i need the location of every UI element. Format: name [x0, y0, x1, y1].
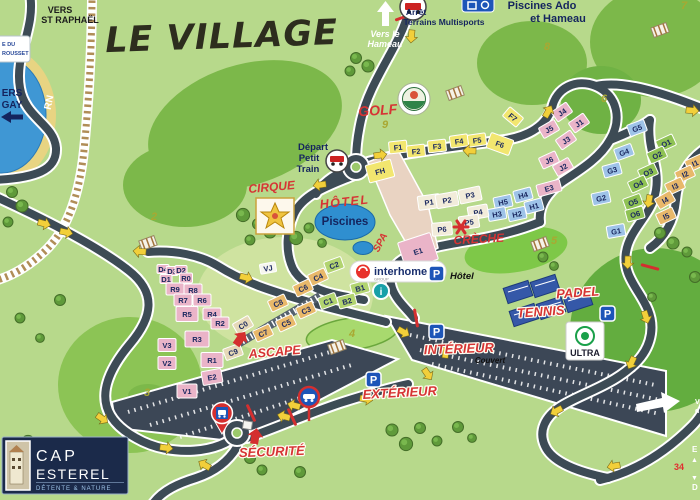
rousset-line2: ROUSSET [2, 51, 29, 57]
building-R0: R0 [180, 273, 193, 283]
golf-hole-number: 9 [382, 119, 389, 131]
edge-text-v: V [695, 399, 700, 406]
vers-agay-sign: ERS GAY [1, 88, 23, 123]
vers-st-raphael-line1: VERS [48, 5, 73, 15]
bush [362, 60, 374, 72]
info-letter: i [380, 287, 383, 298]
ultra-logo: ULTRA [566, 322, 604, 360]
depart-train-icon [326, 150, 348, 172]
bush [55, 295, 66, 306]
edge-text-d: d [695, 408, 699, 415]
parking-icon-padel: P [600, 306, 615, 321]
building-label: P6 [437, 225, 447, 235]
building-label: F5 [472, 135, 482, 145]
p-letter: P [433, 269, 440, 281]
building-label: P1 [424, 197, 434, 207]
golf-hole-number: 4 [348, 328, 355, 340]
bush [386, 424, 398, 436]
bush [648, 293, 657, 302]
guard-post [242, 420, 252, 429]
parking-icon-interieur: P [429, 324, 444, 339]
padel-label: PADEL [556, 284, 600, 302]
interhome-sub-label: GROUP [374, 277, 389, 282]
building-F2: F2 [406, 144, 425, 158]
building-label: R6 [197, 296, 207, 305]
building-label: H3 [492, 209, 503, 220]
bush [16, 200, 28, 212]
depart-line2: Petit [299, 153, 320, 164]
building-G1: G1 [606, 224, 626, 239]
parking-icon-exterieur: P [366, 372, 381, 387]
logo-tagline: DÉTENTE & NATURE [36, 485, 112, 492]
couvert-label: Couvert [475, 356, 506, 365]
piscines-ado-line1: Piscines Ado [508, 0, 577, 12]
securite-label: SÉCURITÉ [239, 443, 306, 460]
building-label: F2 [411, 147, 421, 157]
multisport-icon [462, 0, 494, 12]
building-V2: V2 [158, 357, 176, 370]
building-label: F1 [393, 143, 403, 153]
bush [236, 208, 249, 221]
golf-hole-number: 3 [144, 387, 150, 399]
edge-letter-e: E [692, 445, 698, 454]
bush [682, 247, 692, 257]
building-R6: R6 [193, 294, 211, 306]
piscines-ado-line2: et Hameau [530, 13, 586, 25]
building-R3: R3 [185, 331, 209, 347]
vers-hameau-line2: Hameau [367, 39, 403, 49]
building-label: F3 [432, 142, 442, 152]
p-letter: P [433, 327, 440, 339]
bush [399, 437, 412, 450]
building-label: R7 [178, 296, 188, 305]
bush [690, 272, 700, 283]
building-label: P3 [465, 190, 476, 201]
p-letter: P [370, 375, 377, 387]
depart-line3: Train [297, 164, 320, 175]
building-label: R2 [215, 319, 225, 328]
building-H3: H3 [487, 207, 507, 222]
bush [295, 467, 306, 478]
bush [257, 465, 267, 475]
bush [538, 252, 548, 262]
building-R7: R7 [174, 294, 192, 306]
bush [245, 235, 255, 245]
bush [655, 228, 666, 239]
building-E2: E2 [201, 368, 223, 385]
golf-hole-number: 6 [601, 93, 608, 105]
rousset-line1: E DU [2, 42, 15, 48]
edge-down-triangle: ▼ [691, 475, 698, 482]
building-label: R5 [182, 310, 192, 319]
logo-esterel: ESTEREL [36, 466, 110, 482]
depart-line1: Départ [298, 142, 329, 153]
piscines-label: Piscines [322, 216, 369, 228]
interieur-label: INTÉRIEUR [424, 340, 495, 357]
building-P6: P6 [431, 222, 452, 237]
building-label: V1 [182, 387, 191, 396]
arret-line1: Arrêt [406, 7, 426, 17]
building-V3: V3 [158, 339, 176, 352]
arret-line2: Terrains Multisports [403, 17, 484, 27]
golf-hole-number: 2 [150, 211, 157, 223]
small-pool [353, 242, 373, 255]
vers-st-raphael-line2: ST RAPHAËL [41, 15, 99, 25]
agay-line2: GAY [2, 100, 23, 111]
golf-hole-number: 8 [544, 41, 551, 53]
building-label: P2 [442, 195, 453, 205]
bush [15, 313, 25, 323]
bush [318, 239, 327, 248]
bush [550, 262, 559, 271]
bush [432, 436, 442, 446]
car-icon [303, 394, 315, 399]
parking-hotel-label: Hôtel [450, 271, 474, 282]
building-label: R1 [207, 356, 217, 365]
building-VJ: VJ [259, 262, 276, 275]
golf-label: GOLF [358, 101, 398, 120]
bush [667, 237, 679, 249]
edge-letter-d: D [692, 483, 698, 492]
edge-up-triangle: ▲ [691, 457, 698, 464]
golf-fairway [123, 143, 247, 227]
vers-hameau-line1: Vers le [370, 29, 399, 39]
cirque-icon [256, 198, 294, 234]
building-R9: R9 [166, 283, 184, 295]
building-label: V3 [162, 341, 171, 350]
building-F5: F5 [467, 133, 486, 147]
bush [345, 66, 355, 76]
bush [453, 422, 464, 433]
building-F1: F1 [388, 140, 407, 154]
bush [415, 423, 426, 434]
bush [351, 53, 362, 64]
bush [468, 434, 477, 443]
map-title: LE VILLAGE [105, 13, 339, 61]
building-label: V2 [162, 359, 171, 368]
building-R2: R2 [211, 317, 229, 329]
map-canvas: F1F2F3F4F5F6F7FHJ4J1J5J3J6J2E3E1E2H4H5H1… [0, 0, 700, 500]
building-R1: R1 [201, 353, 223, 368]
info-icon: i [373, 283, 389, 299]
cap-esterel-logo: CAP ESTEREL DÉTENTE & NATURE [2, 437, 128, 494]
building-F4: F4 [449, 134, 468, 148]
rousset-sign: E DU ROUSSET [0, 36, 30, 62]
edge-number: 34 [674, 462, 684, 472]
building-label: R0 [181, 274, 191, 283]
building-label: E2 [207, 372, 218, 382]
ultra-label: ULTRA [570, 348, 600, 358]
bush [7, 187, 18, 198]
bush [3, 217, 13, 227]
creche-label: CRÈCHE [453, 230, 505, 248]
building-label: R9 [170, 285, 180, 294]
resort-map: F1F2F3F4F5F6F7FHJ4J1J5J3J6J2E3E1E2H4H5H1… [0, 0, 700, 500]
agay-line1: ERS [2, 88, 23, 99]
p-letter: P [604, 309, 611, 321]
logo-cap: CAP [36, 448, 78, 465]
bush [304, 223, 314, 233]
golf-club-logo [398, 83, 430, 115]
building-V1: V1 [177, 384, 197, 398]
bush [36, 334, 45, 343]
building-label: R3 [192, 335, 202, 344]
golf-hole-number: 7 [681, 0, 688, 12]
building-F3: F3 [427, 139, 446, 153]
building-label: G1 [610, 226, 621, 237]
building-label: VJ [263, 263, 274, 273]
golf-hole-number: 5 [551, 235, 558, 247]
building-R5: R5 [176, 307, 198, 322]
